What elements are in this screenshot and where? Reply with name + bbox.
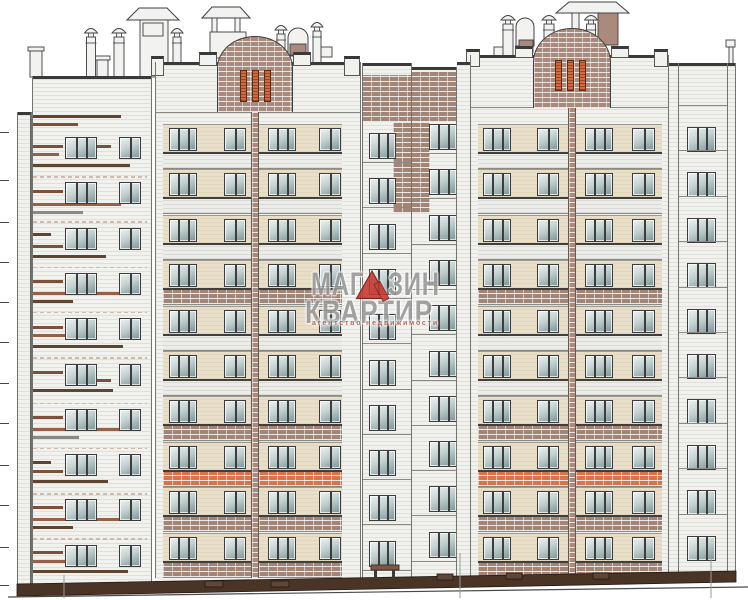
watermark-triangle-a-logo — [0, 0, 748, 600]
elevation-drawing-canvas: МАГ ЗИН КВАРТИР агентство недвижимости — [0, 0, 748, 600]
watermark: МАГ ЗИН КВАРТИР агентство недвижимости — [0, 0, 748, 600]
